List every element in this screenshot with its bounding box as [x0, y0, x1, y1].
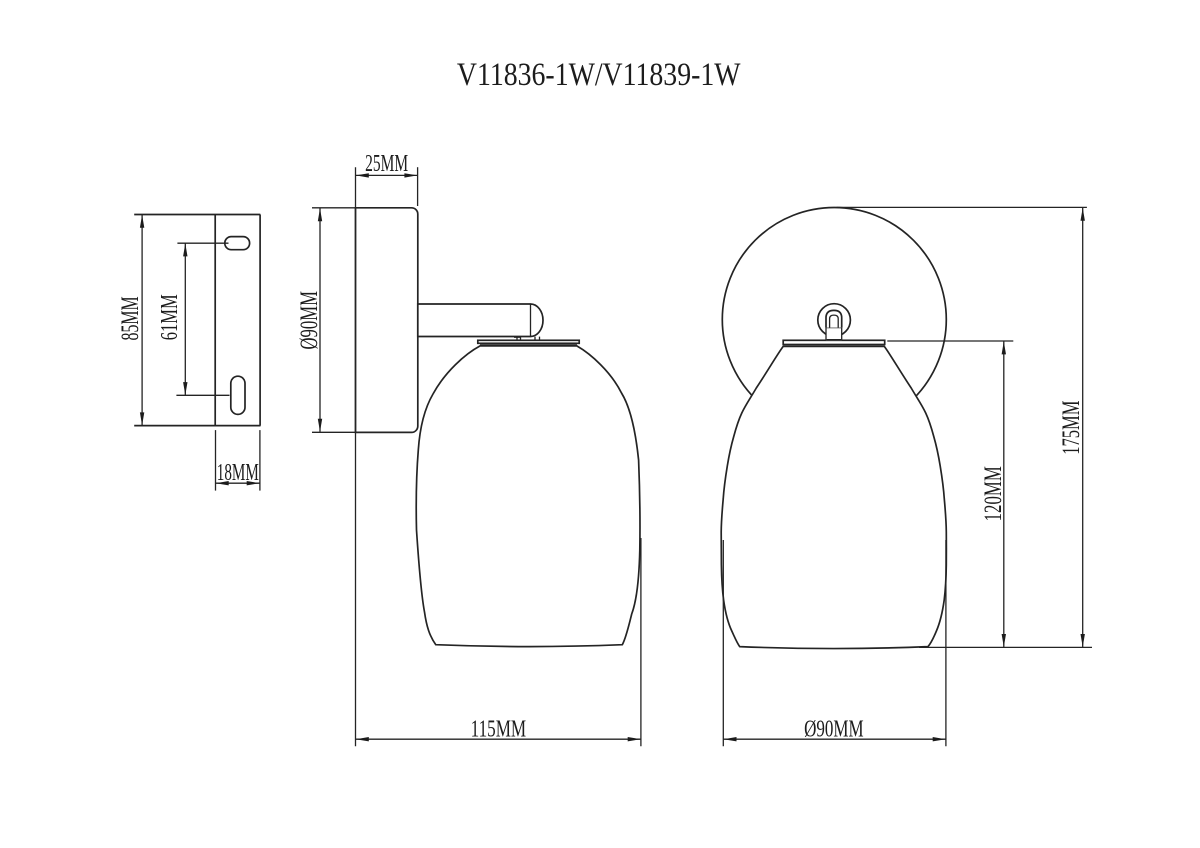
svg-text:18MM: 18MM: [217, 460, 259, 486]
svg-text:175MM: 175MM: [1058, 401, 1085, 455]
svg-text:85MM: 85MM: [117, 296, 144, 340]
svg-text:115MM: 115MM: [471, 717, 527, 743]
svg-text:25MM: 25MM: [365, 151, 408, 177]
svg-text:V11836-1W/V11839-1W: V11836-1W/V11839-1W: [457, 57, 741, 93]
svg-text:61MM: 61MM: [157, 294, 183, 340]
svg-text:Ø90MM: Ø90MM: [296, 291, 323, 350]
svg-text:Ø90MM: Ø90MM: [804, 717, 864, 743]
svg-text:120MM: 120MM: [980, 466, 1007, 521]
